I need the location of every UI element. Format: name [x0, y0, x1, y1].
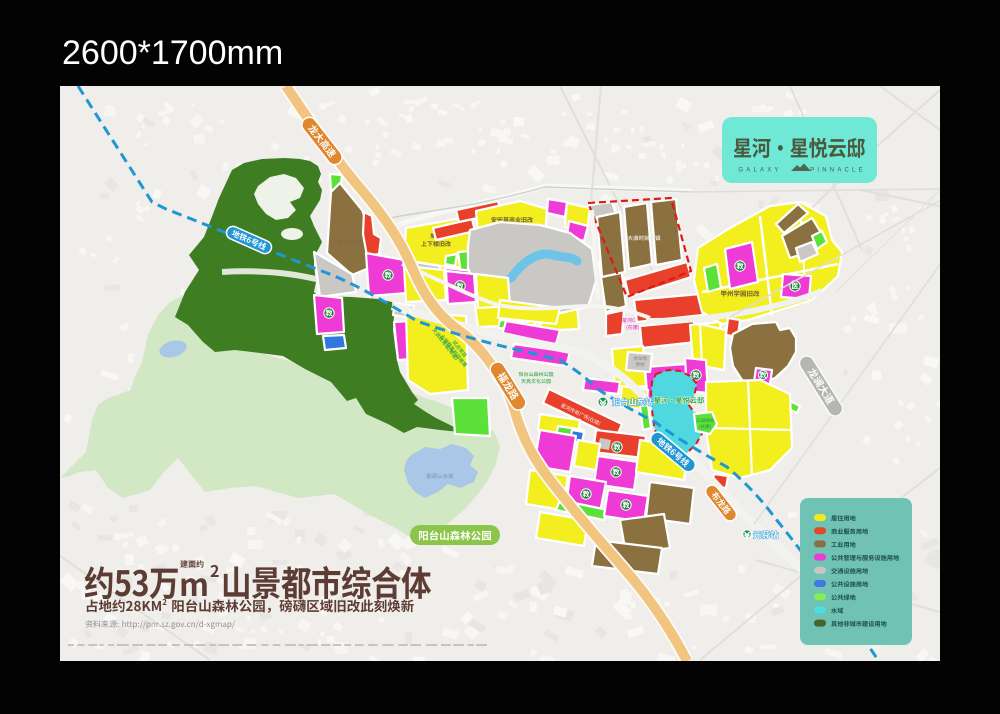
svg-text:GALAXY: GALAXY: [738, 168, 781, 174]
svg-text:2600*1700mm: 2600*1700mm: [62, 34, 283, 72]
svg-text:PINNACLE: PINNACLE: [810, 168, 866, 174]
